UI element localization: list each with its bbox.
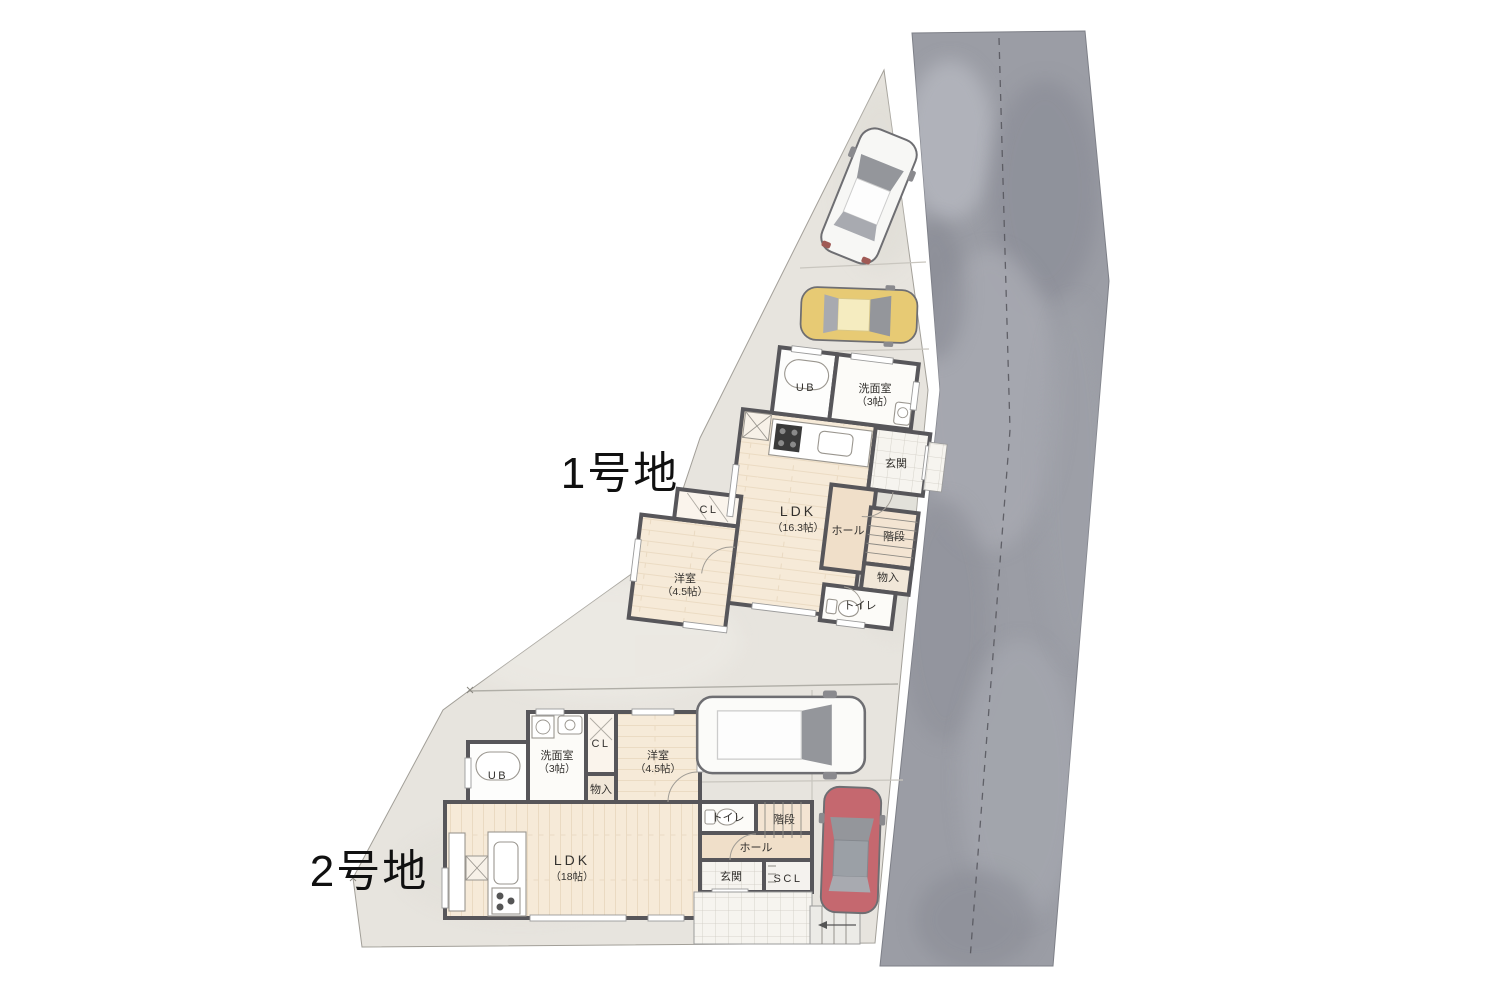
lot2-ldk-size: （18帖） (550, 870, 593, 883)
lot2-washroom-size: （3帖） (538, 762, 575, 775)
lot1-entrance-label: 玄関 (885, 456, 907, 470)
car-white-van (697, 691, 865, 780)
lot1-hall-label: ホール (832, 524, 865, 537)
lot1-stairs-label: 階段 (883, 529, 905, 543)
window (648, 915, 684, 921)
burner (497, 904, 504, 911)
lot1-ub-label: UB (796, 382, 816, 394)
window (632, 709, 674, 715)
lot2-stairs-label: 階段 (773, 812, 795, 826)
window (530, 915, 626, 921)
car-red-sedan (816, 786, 887, 914)
lot1-toilet-label: トイレ (844, 600, 877, 612)
lot2-closet-label: CL (591, 738, 610, 750)
lot2-washroom-label: 洗面室 (541, 748, 574, 762)
lot2-hall-label: ホール (740, 841, 773, 854)
lot1-ldk-label: LDK (780, 503, 816, 519)
stove-icon (773, 423, 802, 452)
site-plan-svg: 1号地 2号地 UB 洗面室 （3帖） 玄関 LDK （16.3帖） ホール 階… (0, 0, 1500, 1000)
lot1-storage-label: 物入 (877, 570, 899, 584)
lot2-bedroom-size: （4.5帖） (635, 762, 681, 775)
lot2-label: 2号地 (310, 847, 428, 896)
stove-icon (492, 888, 520, 914)
lot1-washroom-label: 洗面室 (859, 381, 892, 395)
lot1-ldk-size: （16.3帖） (772, 521, 824, 534)
lot2-ldk-label: LDK (554, 852, 590, 868)
washing-machine-icon (532, 716, 554, 738)
lot2-bedroom-label: 洋室 (647, 748, 669, 762)
lot2-storage-label: 物入 (590, 782, 612, 796)
lot2-scl-label: SCL (774, 873, 803, 885)
lot2-ub-label: UB (488, 770, 508, 782)
washbasin-icon (558, 716, 582, 734)
kitchen-cupboard-icon (449, 833, 465, 911)
burner (497, 893, 504, 900)
lot2-toilet-label: トイレ (712, 812, 745, 824)
washbasin-icon (893, 402, 912, 426)
lot1-washroom-size: （3帖） (856, 395, 893, 408)
lot1-closet-label: CL (699, 504, 718, 516)
window (536, 709, 564, 715)
burner (508, 898, 515, 905)
entrance-porch (694, 892, 812, 944)
sink-icon (817, 431, 853, 457)
lot1-bedroom-label: 洋室 (674, 571, 696, 585)
toilet-tank-icon (826, 599, 838, 614)
sink-icon (494, 842, 518, 884)
site-plan-canvas: 1号地 2号地 UB 洗面室 （3帖） 玄関 LDK （16.3帖） ホール 階… (0, 0, 1500, 1000)
lot2-entrance-label: 玄関 (720, 869, 742, 883)
lot1-label: 1号地 (561, 449, 679, 498)
lot1-bedroom-size: （4.5帖） (662, 585, 708, 598)
window (442, 868, 448, 908)
car-yellow-compact (800, 282, 918, 348)
window (465, 758, 471, 788)
